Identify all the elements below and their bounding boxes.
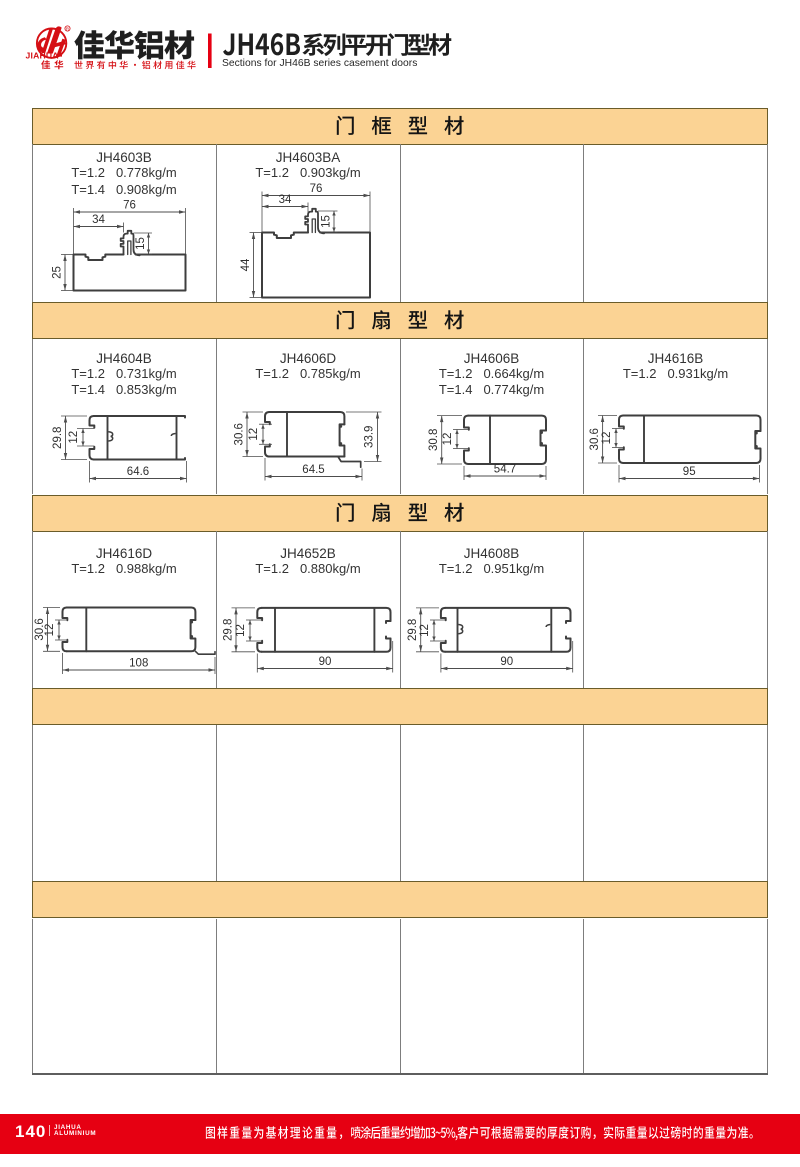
svg-text:95: 95 <box>683 466 696 478</box>
svg-text:44: 44 <box>240 258 252 271</box>
svg-text:76: 76 <box>310 183 323 195</box>
svg-text:25: 25 <box>51 266 63 279</box>
svg-text:54.7: 54.7 <box>494 464 516 476</box>
svg-text:33.9: 33.9 <box>364 426 376 448</box>
svg-text:12: 12 <box>442 433 454 446</box>
svg-text:76: 76 <box>123 200 136 212</box>
svg-text:34: 34 <box>279 194 292 206</box>
svg-text:90: 90 <box>319 656 332 668</box>
svg-text:108: 108 <box>129 658 148 670</box>
svg-text:34: 34 <box>92 214 105 226</box>
svg-text:12: 12 <box>601 432 613 445</box>
svg-text:12: 12 <box>248 428 260 441</box>
svg-text:64.5: 64.5 <box>302 464 324 476</box>
svg-text:64.6: 64.6 <box>127 466 149 478</box>
svg-text:15: 15 <box>320 215 332 228</box>
svg-text:30.6: 30.6 <box>233 423 245 445</box>
svg-text:30.8: 30.8 <box>428 429 440 451</box>
svg-text:12: 12 <box>68 431 80 444</box>
svg-text:30.6: 30.6 <box>589 428 601 450</box>
svg-text:29.8: 29.8 <box>52 427 64 449</box>
svg-text:12: 12 <box>419 624 431 637</box>
svg-text:12: 12 <box>44 624 56 637</box>
svg-text:29.8: 29.8 <box>407 619 419 641</box>
svg-text:90: 90 <box>500 656 513 668</box>
svg-text:15: 15 <box>135 237 147 250</box>
svg-text:12: 12 <box>235 624 247 637</box>
svg-text:29.8: 29.8 <box>222 619 234 641</box>
